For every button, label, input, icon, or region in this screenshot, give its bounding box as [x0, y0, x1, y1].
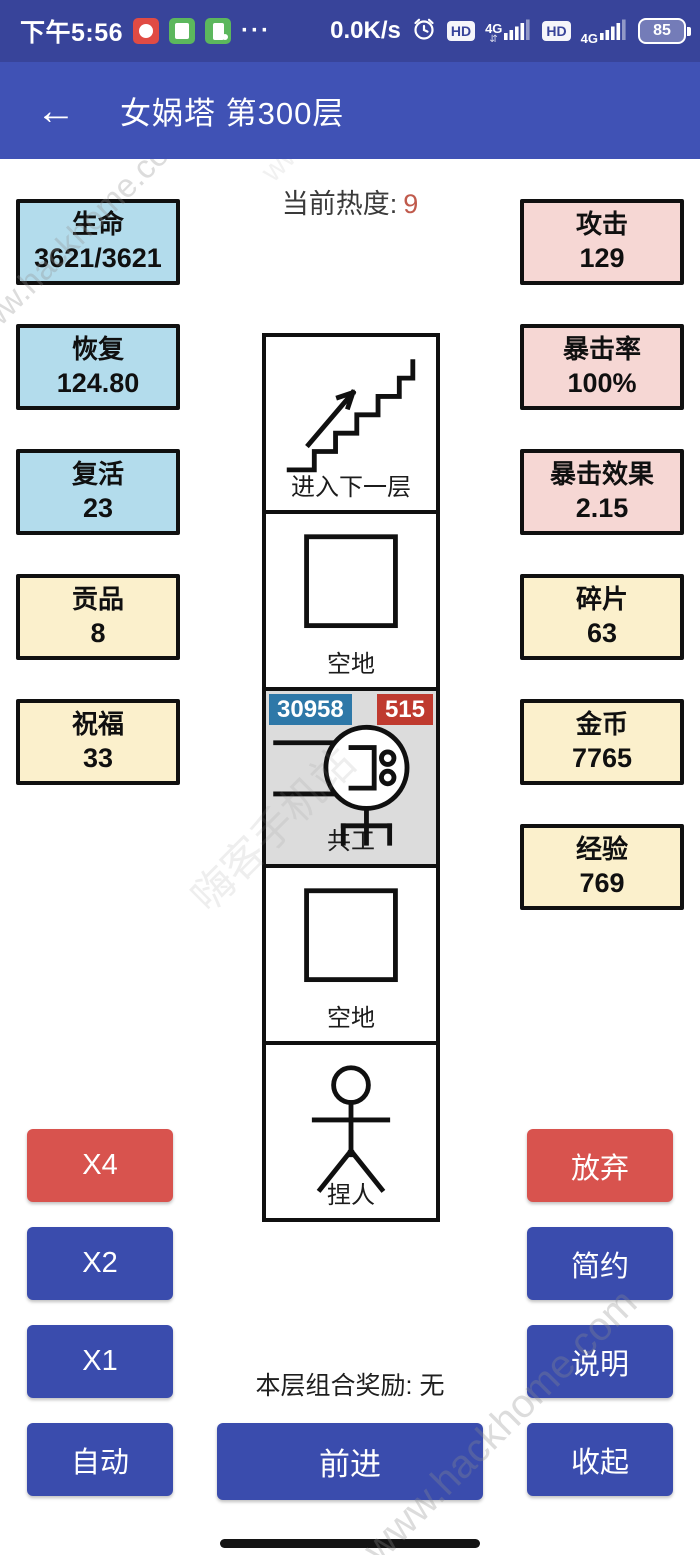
heat-label: 当前热度: [282, 189, 398, 219]
stat-tribute[interactable]: 贡品 8 [16, 574, 180, 660]
stairs-up-icon [266, 337, 436, 510]
stat-shards[interactable]: 碎片 63 [520, 574, 684, 660]
battery-percent: 85 [653, 22, 671, 40]
stat-recovery[interactable]: 恢复 124.80 [16, 324, 180, 410]
stat-blessing[interactable]: 祝福 33 [16, 699, 180, 785]
home-indicator-bar[interactable] [220, 1539, 480, 1548]
stat-value: 124.80 [57, 366, 140, 401]
page-title: 女娲塔 第300层 [120, 88, 344, 133]
back-arrow-icon[interactable]: ← [36, 91, 76, 131]
monster-hp-badge: 30958 [269, 694, 352, 725]
volte-hd-icon: HD [447, 21, 475, 41]
stat-label: 生命 [72, 208, 124, 242]
cell-next-floor[interactable]: 进入下一层 [266, 337, 436, 514]
notes-app-icon [169, 18, 195, 44]
stat-label: 暴击率 [563, 333, 641, 367]
signal-bars-icon [504, 18, 532, 45]
stat-label: 金币 [576, 708, 628, 742]
data-activity-icon: ⇵ [490, 35, 498, 45]
stat-label: 贡品 [72, 583, 124, 617]
sim2-signal: 4G [581, 18, 628, 45]
stat-label: 攻击 [576, 208, 628, 242]
sim1-signal: 4G ⇵ [485, 18, 532, 45]
stat-crit-damage[interactable]: 暴击效果 2.15 [520, 449, 684, 535]
heat-value: 9 [403, 189, 418, 219]
player-stick-figure-icon [266, 1045, 436, 1218]
cell-player[interactable]: 捏人 [266, 1045, 436, 1218]
alarm-clock-icon [411, 16, 437, 47]
stat-attack[interactable]: 攻击 129 [520, 199, 684, 285]
stat-value: 33 [83, 741, 113, 776]
sim2-4g-label: 4G [581, 32, 598, 45]
speed-x4-button[interactable]: X4 [27, 1129, 173, 1202]
tower-strip: 进入下一层 空地 30958 515 [262, 333, 440, 1222]
stat-label: 祝福 [72, 708, 124, 742]
speed-x2-button[interactable]: X2 [27, 1227, 173, 1300]
stat-exp[interactable]: 经验 769 [520, 824, 684, 910]
app-bar: ← 女娲塔 第300层 [0, 62, 700, 159]
stat-value: 23 [83, 491, 113, 526]
stat-value: 8 [90, 616, 105, 651]
give-up-button[interactable]: 放弃 [527, 1129, 673, 1202]
more-notifications-icon: ··· [241, 17, 271, 45]
stat-value: 7765 [572, 741, 632, 776]
monster-attack-badge: 515 [377, 694, 433, 725]
watermark: www.hackhome.com [355, 1281, 646, 1555]
stat-value: 129 [579, 241, 624, 276]
cell-empty-bottom[interactable]: 空地 [266, 868, 436, 1045]
stat-revive[interactable]: 复活 23 [16, 449, 180, 535]
stat-label: 复活 [72, 458, 124, 492]
advance-button[interactable]: 前进 [217, 1423, 483, 1500]
stat-hp[interactable]: 生命 3621/3621 [16, 199, 180, 285]
stat-value: 100% [567, 366, 636, 401]
cell-empty-top[interactable]: 空地 [266, 514, 436, 691]
game-screen: 下午5:56 ··· 0.0K/s HD 4G ⇵ [0, 0, 700, 1555]
stat-value: 2.15 [576, 491, 629, 526]
signal-bars-icon-2 [600, 18, 628, 45]
recorder-app-icon [133, 18, 159, 44]
stat-value: 63 [587, 616, 617, 651]
stat-label: 经验 [576, 833, 628, 867]
stat-label: 暴击效果 [550, 458, 654, 492]
phone-manager-app-icon [205, 18, 231, 44]
stat-value: 3621/3621 [34, 241, 162, 276]
volte-hd-icon-2: HD [542, 21, 570, 41]
stat-gold[interactable]: 金币 7765 [520, 699, 684, 785]
sim1-4g-label: 4G [485, 22, 502, 35]
simple-mode-button[interactable]: 简约 [527, 1227, 673, 1300]
network-speed: 0.0K/s [330, 17, 401, 45]
empty-square-icon [266, 868, 436, 1041]
collapse-button[interactable]: 收起 [527, 1423, 673, 1496]
status-bar: 下午5:56 ··· 0.0K/s HD 4G ⇵ [0, 0, 700, 62]
stat-label: 恢复 [72, 333, 124, 367]
stat-label: 碎片 [576, 583, 628, 617]
combo-reward-text: 本层组合奖励: 无 [0, 1366, 700, 1402]
empty-square-icon [266, 514, 436, 687]
battery-indicator: 85 [638, 18, 686, 44]
stat-crit-rate[interactable]: 暴击率 100% [520, 324, 684, 410]
auto-button[interactable]: 自动 [27, 1423, 173, 1496]
cell-monster-gonggong[interactable]: 30958 515 共工 [266, 691, 436, 868]
status-time: 下午5:56 [20, 13, 123, 49]
stat-value: 769 [579, 866, 624, 901]
